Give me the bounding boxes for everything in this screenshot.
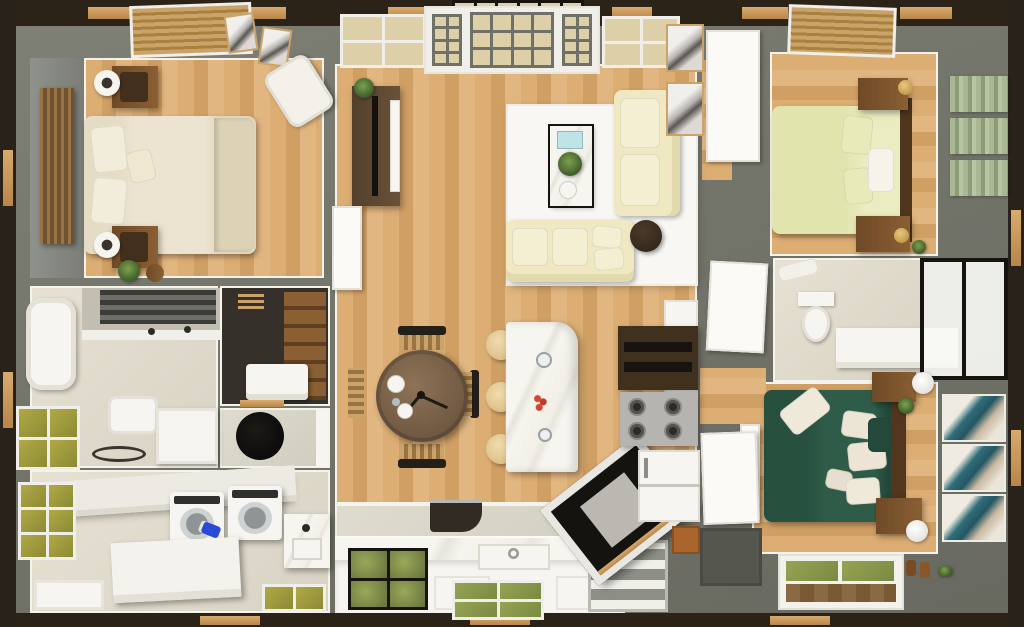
console-plant <box>354 78 374 98</box>
exterior-wall-left <box>0 0 16 627</box>
sidelight-right <box>562 14 592 66</box>
window-pane-olive <box>49 535 74 557</box>
shower-cabinet <box>156 408 218 464</box>
round-lamp <box>94 70 120 96</box>
header-trim <box>3 372 13 428</box>
sofa-cushion <box>552 228 588 266</box>
glass-pane <box>514 15 531 30</box>
bedroom-yellow-door <box>706 30 760 162</box>
toilet-tank <box>798 292 834 306</box>
window-pane-olive <box>50 409 78 437</box>
coffee-table-book <box>558 132 582 148</box>
coffee-table-plant <box>558 152 582 176</box>
green-wall-panel <box>950 160 1008 196</box>
front-door-unit <box>426 8 598 72</box>
upper-cabinet-dark <box>618 326 698 390</box>
fridge-white <box>638 450 700 522</box>
hall-door-lower <box>700 431 759 525</box>
header-trim <box>770 616 830 625</box>
glass-pane <box>449 54 460 63</box>
gold-lamp <box>894 228 909 243</box>
wall-frame-small <box>260 28 290 65</box>
glass-pane <box>435 17 446 26</box>
dining-chair-back <box>398 459 446 468</box>
dining-chair-back <box>398 326 446 335</box>
bathroom-right-door <box>706 261 769 354</box>
place-setting <box>398 404 412 418</box>
dryer <box>228 486 282 540</box>
sidelight-left <box>432 14 462 66</box>
tv <box>372 96 378 196</box>
window-pane <box>605 44 640 66</box>
glassware <box>538 428 552 442</box>
window-pane-olive <box>49 510 74 532</box>
window-pane-yard <box>500 602 542 618</box>
burner-grate <box>664 422 682 440</box>
potted-plant <box>118 260 140 282</box>
window-pane-olive <box>296 587 324 609</box>
wc-door-edge <box>316 410 328 466</box>
closet-dresser <box>246 364 308 400</box>
cooktop-dark <box>430 500 482 532</box>
hall-closet-dark <box>700 528 762 586</box>
window-pane-olive <box>21 510 46 532</box>
green-wall-panel <box>950 76 1008 112</box>
shoes <box>906 560 916 576</box>
slat-accent-panel <box>40 88 74 244</box>
window-pane-garden <box>390 551 426 578</box>
cylinder-lamp <box>906 520 928 542</box>
nightstand-flowers <box>898 398 914 414</box>
cabinet-slat <box>624 362 692 372</box>
window-pane-yard <box>786 561 838 581</box>
living-window-left <box>340 14 426 68</box>
pillow-green <box>868 418 892 452</box>
coffee-table-tray <box>560 182 576 198</box>
wine-glass <box>392 398 400 406</box>
dried-sprig <box>938 566 952 576</box>
glass-pane <box>449 29 460 38</box>
pillow <box>90 177 128 226</box>
dryer-lid <box>238 502 272 534</box>
window-pane-garden <box>351 551 387 578</box>
window-pane-olive <box>21 535 46 557</box>
side-table-round <box>630 220 662 252</box>
bedroom-green-window <box>780 556 902 608</box>
round-black-basin <box>236 412 284 460</box>
window-pane-olive <box>50 440 78 468</box>
sofa-cushion <box>620 98 660 148</box>
glass-pane <box>473 33 490 48</box>
laundry-bench <box>34 580 104 610</box>
window-pane-olive <box>19 409 47 437</box>
washer-controls <box>174 496 220 504</box>
living-art-frame <box>668 26 702 70</box>
blinds <box>790 7 893 55</box>
window-pane-olive <box>21 485 46 507</box>
glass-pane <box>473 15 490 30</box>
window-pane <box>605 19 640 41</box>
glass-pane <box>579 17 590 26</box>
plant-stool <box>146 264 164 282</box>
hanging-towels <box>100 290 216 324</box>
fridge-door-split <box>638 484 700 487</box>
bathtub <box>26 298 76 390</box>
nightstand-plant <box>912 240 926 254</box>
glass-pane <box>565 54 576 63</box>
exterior-wall-right <box>1008 0 1024 627</box>
toilet-left <box>108 396 158 434</box>
laundry-sink-counter <box>284 514 330 568</box>
dining-side-door <box>332 206 362 290</box>
glass-pane <box>579 29 590 38</box>
window-pane-yard <box>500 583 542 599</box>
floor-tray-oval <box>92 446 146 462</box>
glass-pane <box>579 42 590 51</box>
bedroom-yellow-window-blinds <box>787 4 897 58</box>
copper-box <box>672 526 700 554</box>
console-drawers <box>390 100 400 192</box>
teal-art-panel <box>944 496 1004 540</box>
glass-pane <box>565 42 576 51</box>
wall-frame-small <box>226 14 256 51</box>
glass-pane <box>534 33 551 48</box>
shower-glass-divider <box>962 258 966 380</box>
window-pane <box>385 43 424 66</box>
header-trim <box>742 7 788 19</box>
glass-pane <box>514 50 531 65</box>
window-pane-yard <box>455 583 497 599</box>
window-pane-garden <box>351 581 387 608</box>
gold-lamp <box>898 80 913 95</box>
glass-shower <box>920 258 1008 380</box>
hallway-threshold <box>700 368 766 424</box>
closet-threshold <box>240 400 284 407</box>
sink-basin <box>292 538 322 560</box>
glass-pane <box>435 42 446 51</box>
bed-cream-blanket <box>214 118 254 252</box>
closet-vent-grille <box>238 294 264 312</box>
teal-art-panel <box>944 446 1004 490</box>
throw-pillow <box>593 247 625 272</box>
dining-chair-seat <box>400 444 444 459</box>
glass-pane <box>534 15 551 30</box>
header-trim <box>3 150 13 206</box>
front-door-glazed <box>470 12 554 68</box>
burner-grate <box>628 398 646 416</box>
glass-pane <box>493 50 510 65</box>
header-trim <box>1011 430 1021 486</box>
bathroom-left-window <box>16 406 80 470</box>
glass-pane <box>435 29 446 38</box>
window-pane-garden <box>390 581 426 608</box>
sofa-cushion <box>512 228 548 266</box>
kitchen-window-yard <box>452 580 544 620</box>
round-lamp <box>94 232 120 258</box>
window-pane-olive <box>265 587 293 609</box>
header-trim <box>1011 210 1021 266</box>
dining-chair-seat <box>400 335 444 350</box>
glass-pane <box>565 17 576 26</box>
glass-pane <box>449 42 460 51</box>
faucet <box>148 328 155 335</box>
floorplan-scene <box>0 0 1024 627</box>
glass-pane <box>473 50 490 65</box>
cylinder-lamp <box>912 372 934 394</box>
place-setting <box>388 376 404 392</box>
kitchen-faucet <box>508 548 519 559</box>
window-pane-yard <box>842 561 894 581</box>
living-art-frame <box>668 84 702 134</box>
glass-pane <box>493 15 510 30</box>
header-trim <box>200 616 260 625</box>
window-sill-wood <box>786 584 896 602</box>
window-pane-yard <box>455 602 497 618</box>
sofa-horizontal <box>506 220 634 282</box>
laundry-window-left <box>18 482 76 560</box>
glass-pane <box>565 29 576 38</box>
laundry-window-bottom <box>262 584 326 612</box>
faucet <box>184 326 191 333</box>
green-wall-panel <box>950 118 1008 154</box>
nightstand <box>872 372 916 402</box>
red-flowers <box>532 392 548 414</box>
pillow <box>90 124 129 173</box>
fridge-handle <box>644 458 648 478</box>
speaker-box <box>120 72 148 102</box>
burner-grate <box>628 422 646 440</box>
window-pane <box>343 17 382 40</box>
speaker-box <box>120 232 148 262</box>
glass-pane <box>534 50 551 65</box>
kitchen-window-black-frame <box>348 548 428 610</box>
sofa-cushion <box>620 154 660 206</box>
glass-pane <box>435 54 446 63</box>
dryer-controls <box>232 490 278 498</box>
table-center-dot <box>417 391 425 399</box>
dining-chair-seat <box>348 368 364 418</box>
burner-grate <box>664 398 682 416</box>
teal-art-panel <box>944 396 1004 440</box>
range-stainless <box>620 392 698 446</box>
window-pane-olive <box>49 485 74 507</box>
window-pane <box>385 17 424 40</box>
glass-pane <box>493 33 510 48</box>
shoes <box>920 562 930 578</box>
glassware <box>536 352 552 368</box>
pillow-white <box>868 148 894 192</box>
glass-pane <box>514 33 531 48</box>
glass-pane <box>449 17 460 26</box>
header-trim <box>900 7 952 19</box>
window-pane-olive <box>19 440 47 468</box>
cabinet-slat <box>624 342 692 352</box>
glass-pane <box>579 54 590 63</box>
sink-faucet <box>302 524 310 532</box>
laundry-island-table <box>111 537 242 604</box>
throw-pillow <box>591 224 623 249</box>
window-pane <box>343 43 382 66</box>
